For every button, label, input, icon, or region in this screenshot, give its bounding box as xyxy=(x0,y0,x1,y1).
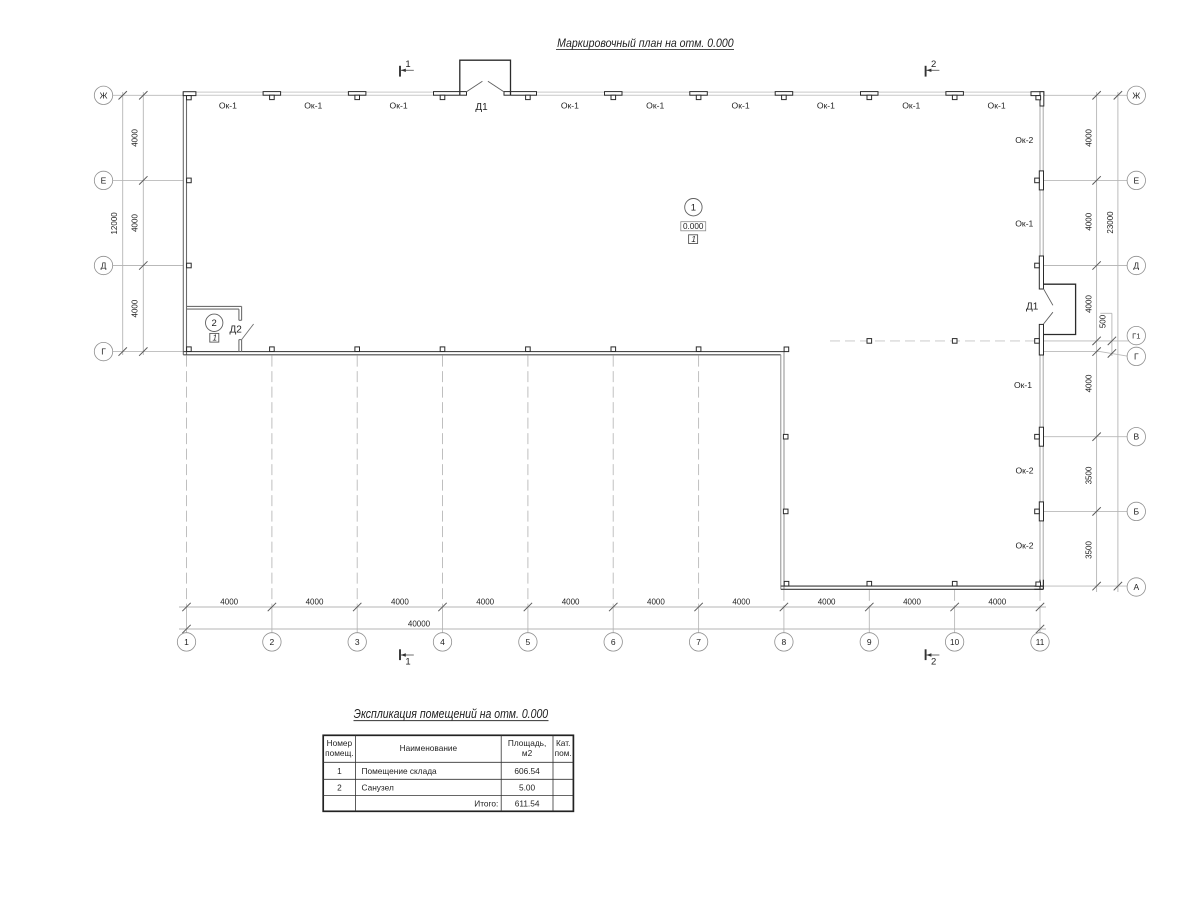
svg-text:Д1: Д1 xyxy=(1026,302,1039,313)
svg-text:4000: 4000 xyxy=(391,598,409,607)
svg-text:Г: Г xyxy=(101,347,106,357)
svg-text:1: 1 xyxy=(691,203,696,214)
svg-text:Итого:: Итого: xyxy=(474,799,498,809)
svg-text:3: 3 xyxy=(355,637,360,647)
svg-text:Ок-1: Ок-1 xyxy=(561,100,579,110)
svg-text:5: 5 xyxy=(526,637,531,647)
svg-text:4000: 4000 xyxy=(131,128,140,146)
svg-text:2: 2 xyxy=(270,637,275,647)
svg-text:Ок-1: Ок-1 xyxy=(390,100,408,110)
svg-text:м2: м2 xyxy=(522,748,533,758)
svg-text:Ок-2: Ок-2 xyxy=(1015,540,1033,550)
svg-text:Ок-1: Ок-1 xyxy=(902,100,920,110)
svg-text:4000: 4000 xyxy=(131,299,140,317)
svg-text:Д2: Д2 xyxy=(230,325,243,336)
svg-text:0.000: 0.000 xyxy=(683,222,704,231)
svg-text:2: 2 xyxy=(931,656,936,667)
svg-text:Д: Д xyxy=(101,261,107,271)
svg-text:4000: 4000 xyxy=(1084,374,1093,392)
svg-text:4000: 4000 xyxy=(306,598,324,607)
svg-text:12000: 12000 xyxy=(110,212,119,235)
svg-text:10: 10 xyxy=(950,638,960,647)
svg-text:помещ.: помещ. xyxy=(325,748,354,758)
svg-text:4000: 4000 xyxy=(1084,295,1093,313)
svg-text:Экспликация помещений на отм.: Экспликация помещений на отм. 0.000 xyxy=(354,706,549,721)
svg-text:Ж: Ж xyxy=(100,90,108,100)
svg-text:4000: 4000 xyxy=(732,598,750,607)
svg-text:Г1: Г1 xyxy=(1132,332,1140,341)
svg-text:4000: 4000 xyxy=(562,598,580,607)
svg-text:Санузел: Санузел xyxy=(362,782,394,792)
svg-text:Помещение склада: Помещение склада xyxy=(362,766,438,776)
svg-text:А: А xyxy=(1133,582,1139,592)
svg-text:В: В xyxy=(1133,432,1139,442)
svg-text:Номер: Номер xyxy=(327,738,353,748)
svg-text:4000: 4000 xyxy=(1084,128,1093,146)
svg-text:1: 1 xyxy=(213,334,218,343)
svg-text:Маркировочный план на отм. 0.0: Маркировочный план на отм. 0.000 xyxy=(557,36,734,50)
svg-text:3500: 3500 xyxy=(1085,541,1094,559)
svg-text:4000: 4000 xyxy=(818,598,836,607)
svg-text:1: 1 xyxy=(405,59,410,70)
svg-text:Д1: Д1 xyxy=(475,102,488,113)
svg-text:611.54: 611.54 xyxy=(515,799,540,809)
svg-text:Е: Е xyxy=(1133,175,1139,185)
svg-text:Ок-2: Ок-2 xyxy=(1015,135,1033,145)
svg-text:4000: 4000 xyxy=(988,598,1006,607)
svg-text:4000: 4000 xyxy=(1084,212,1093,230)
svg-text:6: 6 xyxy=(611,637,616,647)
svg-text:Кат.: Кат. xyxy=(556,738,570,748)
svg-text:Ок-2: Ок-2 xyxy=(1015,465,1033,475)
svg-text:4000: 4000 xyxy=(131,214,140,232)
svg-text:4000: 4000 xyxy=(903,598,921,607)
svg-text:9: 9 xyxy=(867,637,872,647)
svg-text:Д: Д xyxy=(1133,261,1139,271)
svg-text:2: 2 xyxy=(931,59,936,70)
svg-text:8: 8 xyxy=(782,637,787,647)
svg-text:7: 7 xyxy=(696,637,701,647)
svg-text:Г: Г xyxy=(1134,351,1139,361)
svg-text:Е: Е xyxy=(101,175,107,185)
svg-text:Ок-1: Ок-1 xyxy=(1015,219,1033,229)
svg-text:1: 1 xyxy=(337,766,342,776)
svg-text:3500: 3500 xyxy=(1085,466,1094,484)
svg-text:2: 2 xyxy=(212,318,217,329)
svg-text:Ок-1: Ок-1 xyxy=(304,100,322,110)
svg-text:5.00: 5.00 xyxy=(519,782,536,792)
svg-text:Площадь,: Площадь, xyxy=(508,738,546,748)
svg-text:Ж: Ж xyxy=(1132,90,1140,100)
svg-text:4000: 4000 xyxy=(476,598,494,607)
svg-text:1: 1 xyxy=(184,637,189,647)
svg-text:пом.: пом. xyxy=(555,748,572,758)
svg-text:Ок-1: Ок-1 xyxy=(646,100,664,110)
svg-text:4000: 4000 xyxy=(220,598,238,607)
svg-text:1: 1 xyxy=(691,235,696,244)
svg-text:40000: 40000 xyxy=(408,619,431,628)
svg-text:Ок-1: Ок-1 xyxy=(732,100,750,110)
svg-text:Наименование: Наименование xyxy=(400,743,458,753)
svg-text:Ок-1: Ок-1 xyxy=(988,100,1006,110)
svg-text:2: 2 xyxy=(337,782,342,792)
svg-text:Б: Б xyxy=(1134,506,1140,516)
svg-text:23000: 23000 xyxy=(1106,211,1115,234)
svg-text:4000: 4000 xyxy=(647,598,665,607)
svg-text:Ок-1: Ок-1 xyxy=(219,100,237,110)
svg-text:11: 11 xyxy=(1036,638,1045,647)
svg-text:606.54: 606.54 xyxy=(514,766,540,776)
svg-text:4: 4 xyxy=(440,637,445,647)
svg-text:1: 1 xyxy=(405,656,410,667)
svg-text:Ок-1: Ок-1 xyxy=(1014,380,1032,390)
svg-text:500: 500 xyxy=(1098,314,1107,328)
svg-text:Ок-1: Ок-1 xyxy=(817,100,835,110)
